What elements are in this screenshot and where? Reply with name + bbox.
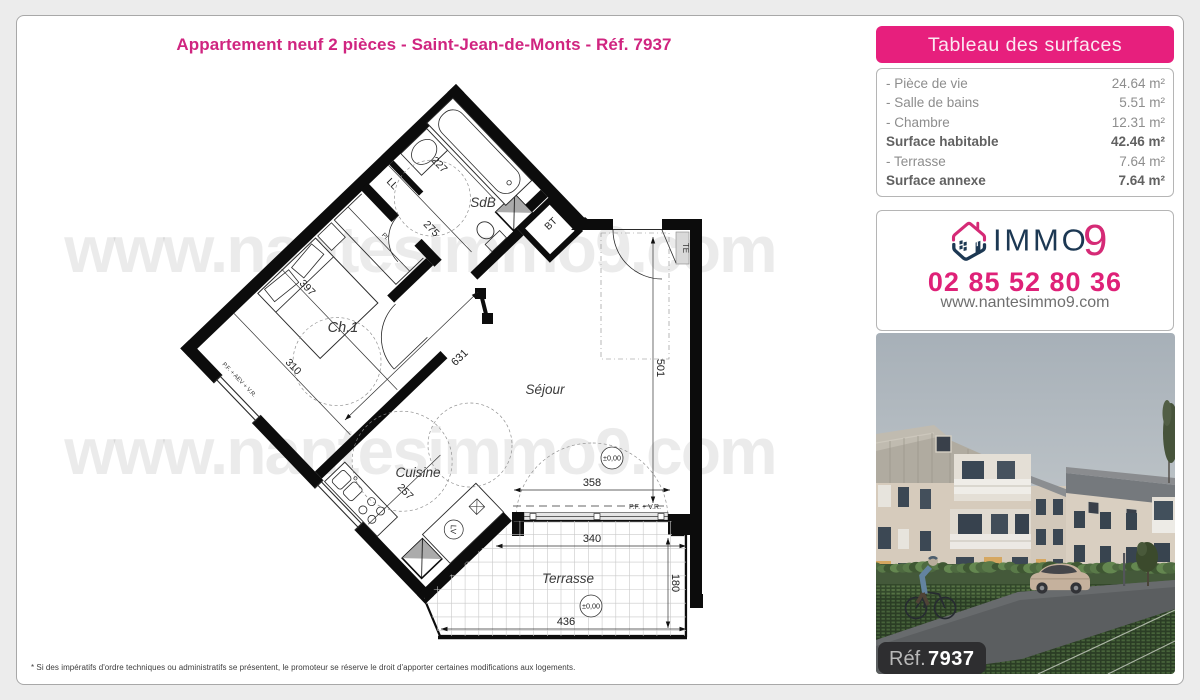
svg-text:P.F. + V.R.: P.F. + V.R. (629, 504, 661, 511)
svg-text:9: 9 (1083, 216, 1107, 265)
svg-text:358: 358 (583, 477, 601, 489)
svg-text:IMMO: IMMO (993, 223, 1089, 258)
svg-text:180: 180 (669, 574, 681, 592)
svg-text:LL: LL (384, 176, 400, 192)
svg-text:±0,00: ±0,00 (603, 454, 621, 463)
svg-text:LV: LV (449, 525, 458, 535)
svg-text:340: 340 (583, 533, 601, 545)
svg-text:436: 436 (557, 616, 575, 628)
svg-text:±0,00: ±0,00 (582, 602, 600, 611)
svg-text:Séjour: Séjour (525, 382, 565, 397)
svg-text:Cuisine: Cuisine (395, 465, 440, 480)
svg-text:Réf.: Réf. (889, 648, 926, 670)
svg-text:310: 310 (283, 356, 304, 377)
svg-text:Terrasse: Terrasse (542, 571, 594, 586)
svg-text:Ch.1: Ch.1 (328, 320, 359, 336)
svg-text:7937: 7937 (928, 648, 975, 670)
svg-text:SdB: SdB (470, 195, 496, 210)
svg-text:501: 501 (654, 359, 666, 377)
svg-text:TE: TE (681, 243, 690, 253)
svg-text:631: 631 (449, 347, 471, 368)
svg-text:P.F. + AEV + V.R.: P.F. + AEV + V.R. (221, 362, 258, 400)
